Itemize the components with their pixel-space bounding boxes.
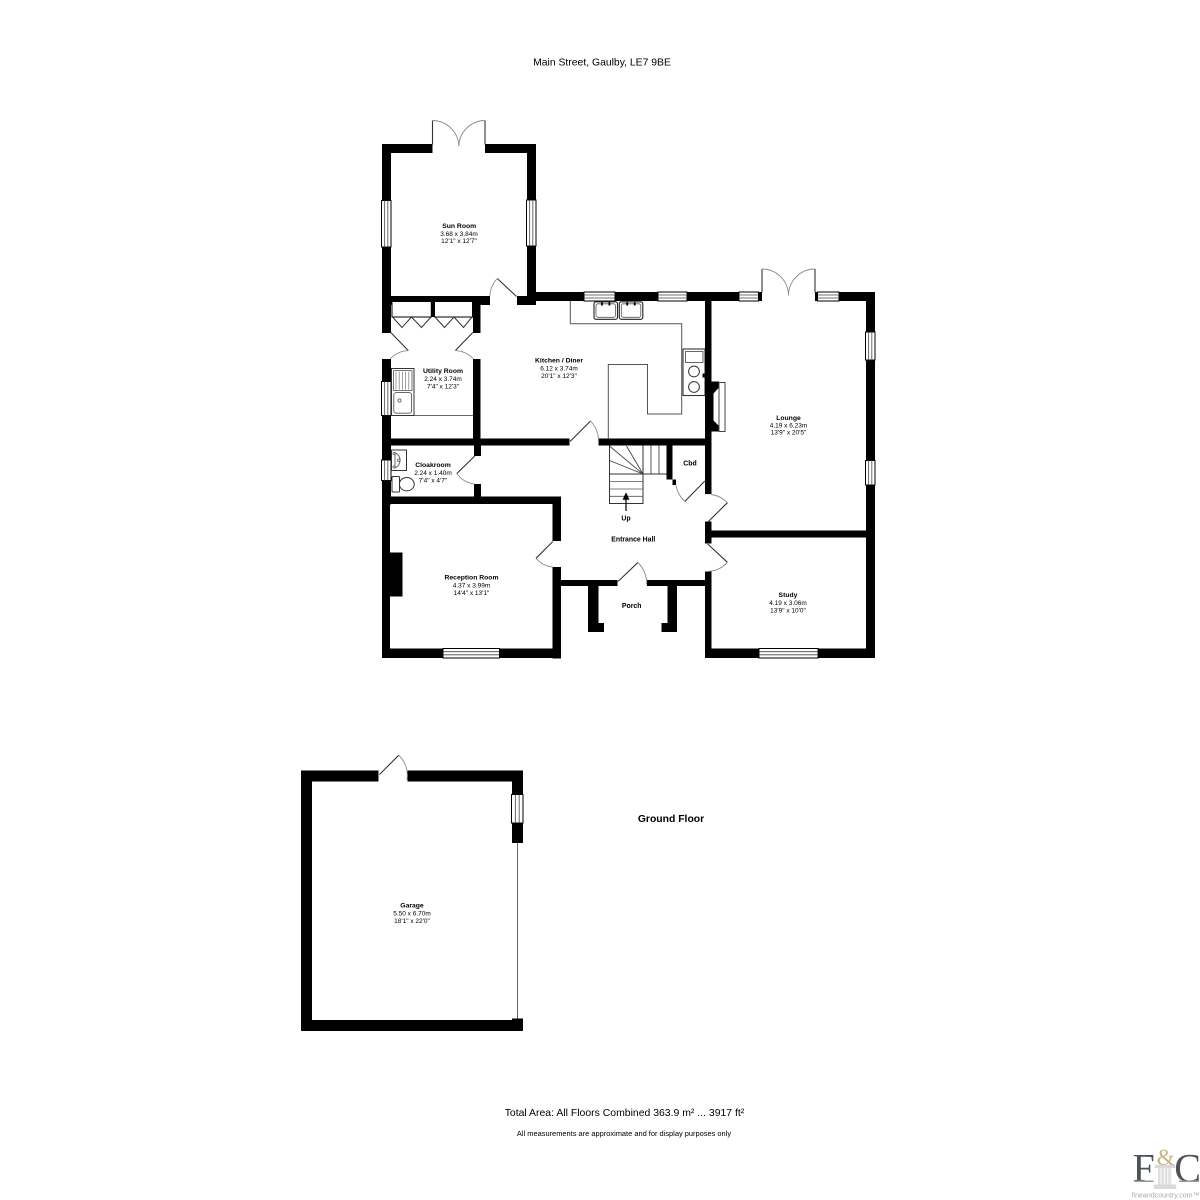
svg-text:Main Street, Gaulby, LE7 9BE: Main Street, Gaulby, LE7 9BE <box>533 58 671 69</box>
svg-text:Up: Up <box>621 515 630 522</box>
svg-text:Study: Study <box>779 592 798 599</box>
svg-text:7'4" x 4'7": 7'4" x 4'7" <box>419 477 448 484</box>
svg-text:6.12 x 3.74m: 6.12 x 3.74m <box>540 365 578 372</box>
svg-text:&: & <box>1157 1145 1175 1170</box>
svg-text:12'1" x 12'7": 12'1" x 12'7" <box>441 238 477 245</box>
svg-text:18'1" x 22'0": 18'1" x 22'0" <box>394 918 430 925</box>
svg-text:14'4" x 13'1": 14'4" x 13'1" <box>454 590 490 597</box>
svg-text:Porch: Porch <box>622 603 642 610</box>
svg-text:Utility Room: Utility Room <box>423 368 463 375</box>
svg-text:Entrance Hall: Entrance Hall <box>611 537 655 544</box>
svg-text:4.37 x 3.99m: 4.37 x 3.99m <box>453 582 491 589</box>
svg-text:Reception Room: Reception Room <box>444 574 498 581</box>
svg-text:fineandcountry.com™: fineandcountry.com™ <box>1132 1192 1200 1199</box>
svg-text:Sun Room: Sun Room <box>442 223 476 230</box>
svg-text:5.50 x 6.70m: 5.50 x 6.70m <box>393 910 431 917</box>
svg-text:Lounge: Lounge <box>776 415 801 422</box>
svg-text:20'1" x 12'3": 20'1" x 12'3" <box>541 373 577 380</box>
svg-text:2.24 x 3.74m: 2.24 x 3.74m <box>424 376 462 383</box>
svg-text:Cbd: Cbd <box>683 460 696 467</box>
svg-text:7'4" x 12'3": 7'4" x 12'3" <box>427 383 460 390</box>
svg-text:Ground Floor: Ground Floor <box>638 814 704 825</box>
svg-text:2.24 x 1.40m: 2.24 x 1.40m <box>414 470 452 477</box>
svg-text:3.68 x 3.84m: 3.68 x 3.84m <box>440 231 478 238</box>
svg-text:13'9" x 10'0": 13'9" x 10'0" <box>770 607 806 614</box>
svg-text:C: C <box>1174 1146 1200 1191</box>
svg-text:Cloakroom: Cloakroom <box>415 462 451 469</box>
svg-text:Kitchen / Diner: Kitchen / Diner <box>535 357 583 364</box>
svg-text:4.19 x 3.06m: 4.19 x 3.06m <box>769 600 807 607</box>
svg-text:F: F <box>1133 1146 1155 1191</box>
svg-text:Total Area: All Floors Combine: Total Area: All Floors Combined 363.9 m²… <box>505 1108 745 1119</box>
svg-text:13'9" x 20'5": 13'9" x 20'5" <box>771 429 807 436</box>
svg-text:Garage: Garage <box>400 902 424 909</box>
svg-text:All measurements are approxima: All measurements are approximate and for… <box>517 1129 731 1138</box>
